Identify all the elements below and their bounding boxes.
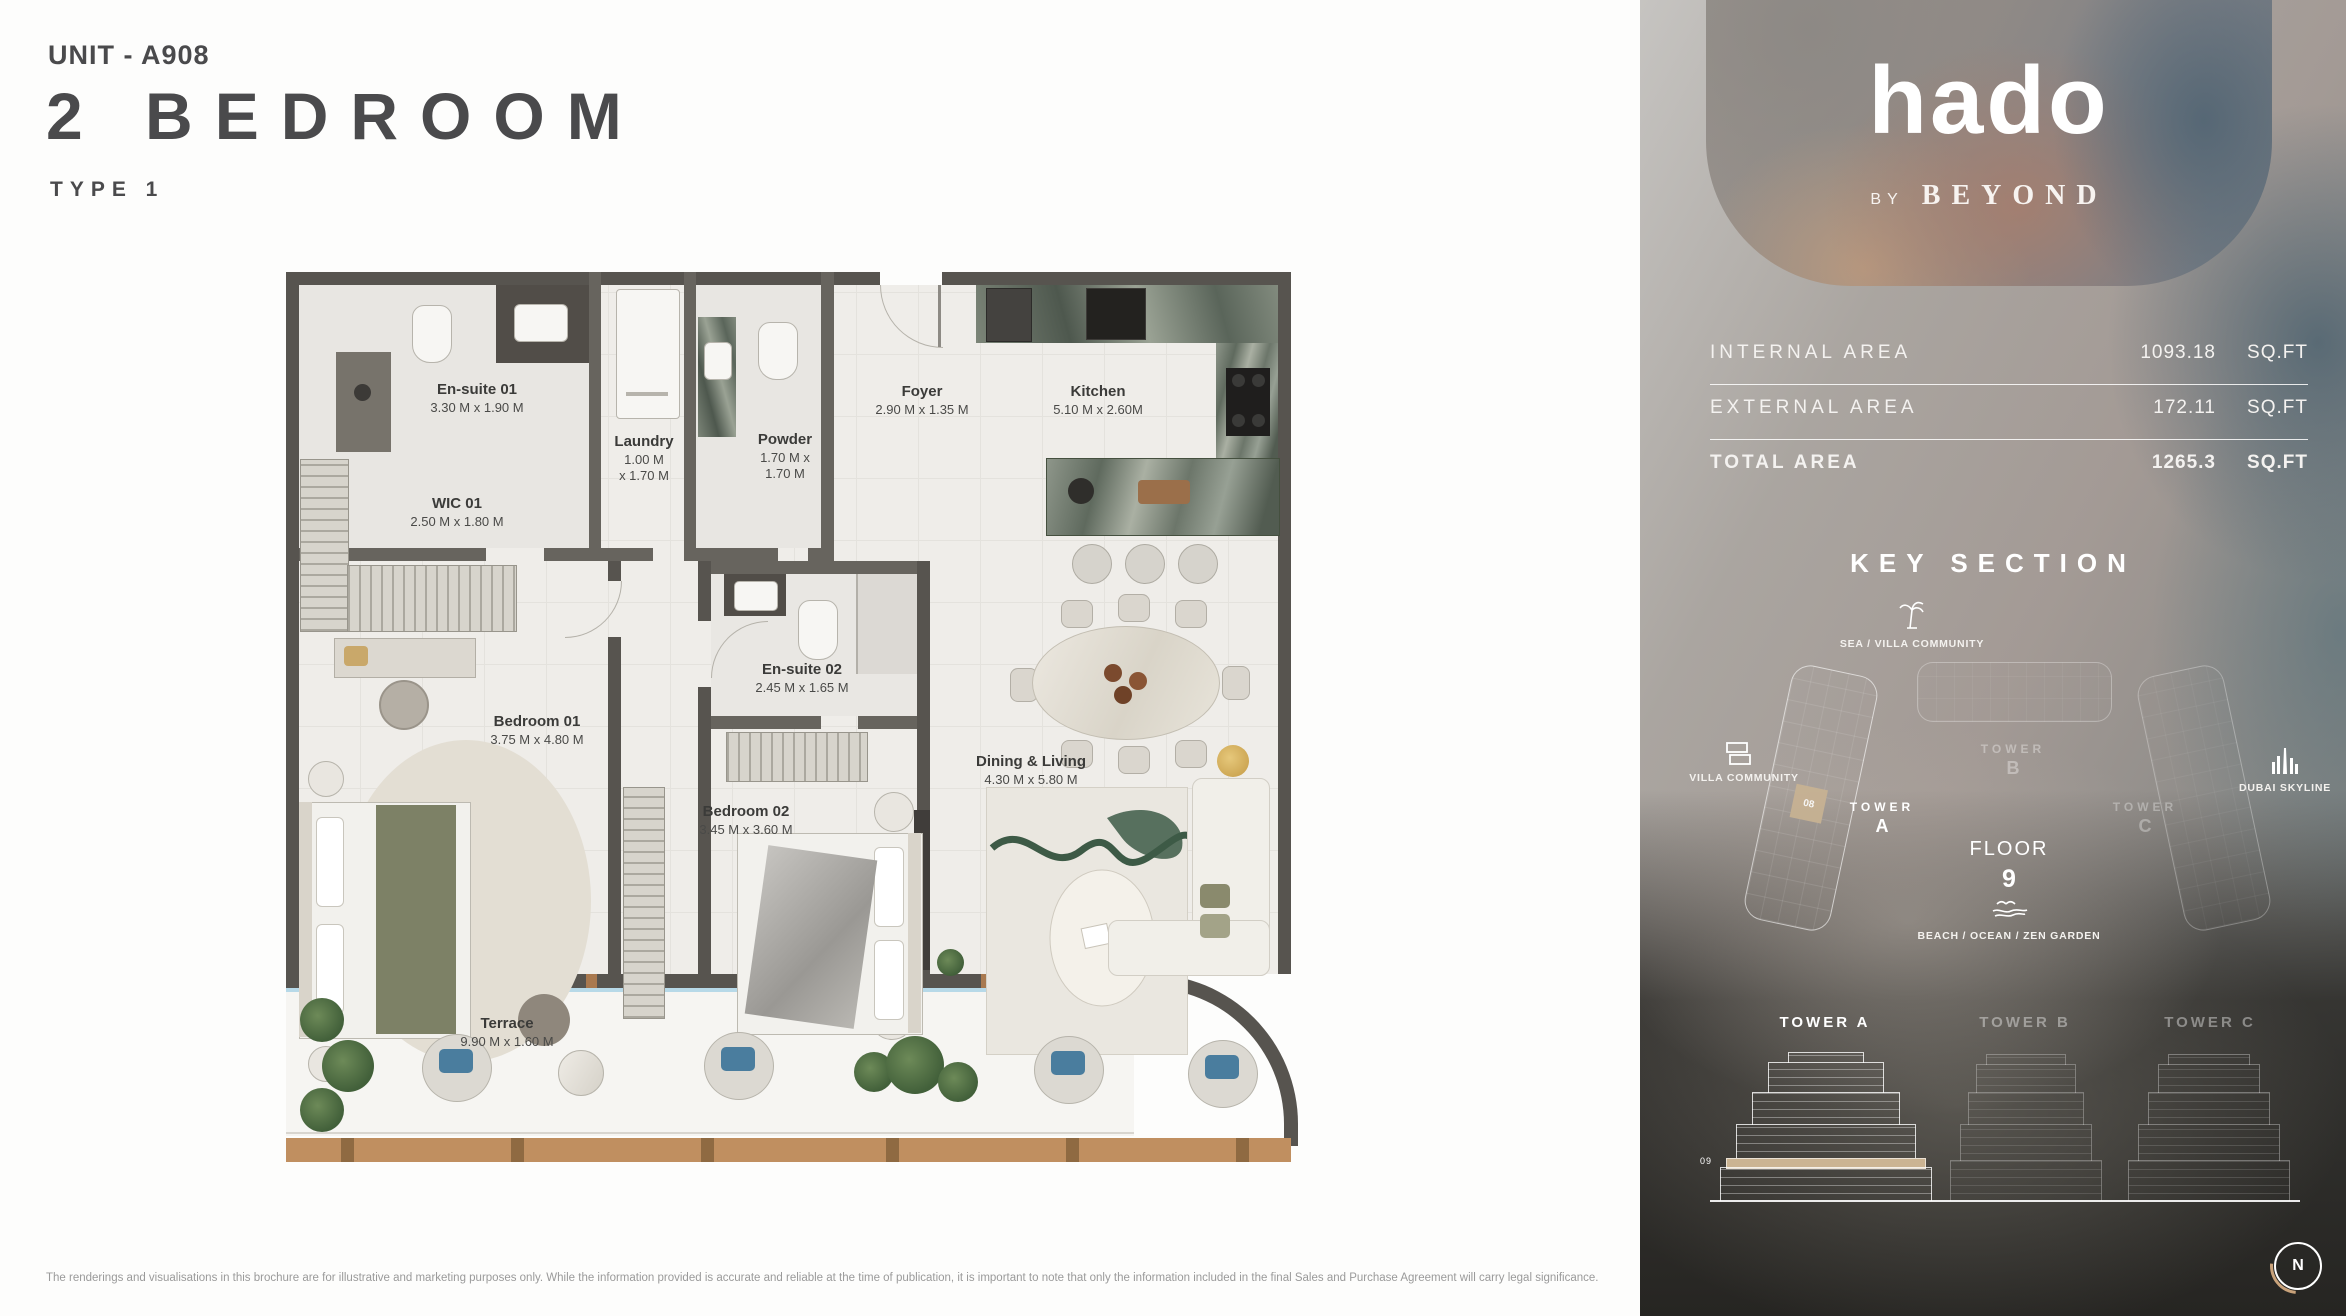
wardrobe — [300, 459, 349, 632]
wall-top — [942, 272, 1291, 285]
brochure-page: UNIT - A908 2 BEDROOM TYPE 1 — [0, 0, 2346, 1316]
plate — [1114, 686, 1132, 704]
dubai-skyline-icon — [2270, 748, 2300, 779]
toilet — [758, 322, 798, 380]
villa-community-label: VILLA COMMUNITY — [1689, 772, 1799, 784]
bar-stool — [1125, 544, 1165, 584]
dubai-skyline-label: DUBAI SKYLINE — [2239, 782, 2331, 794]
bed-02-headboard — [908, 833, 921, 1033]
room-label-wic01: WIC 01 2.50 M x 1.80 M — [410, 494, 503, 530]
washing-machine — [616, 289, 680, 419]
terrace-plant — [300, 998, 344, 1042]
corridor-closet — [623, 787, 665, 1019]
plate — [1129, 672, 1147, 690]
wall-ensuite02-bottom — [711, 716, 821, 729]
room-label-foyer: Foyer 2.90 M x 1.35 M — [875, 382, 968, 418]
brand-byline: BYBEYOND — [1706, 180, 2272, 212]
shower-area — [336, 352, 391, 452]
toilet — [798, 600, 838, 660]
palm-tree-icon — [1899, 600, 1925, 635]
plate — [1104, 664, 1122, 682]
brand-logo: hado — [1706, 46, 2272, 156]
room-label-kitchen: Kitchen 5.10 M x 2.60M — [1053, 382, 1143, 418]
sea-villa-label: SEA / VILLA COMMUNITY — [1840, 638, 1984, 650]
wall — [601, 548, 653, 561]
ensuite02-shower — [856, 574, 919, 674]
wall-bedroom01 — [608, 561, 621, 581]
deck-post — [1236, 1138, 1249, 1162]
wall-ensuite02-bottom — [858, 716, 917, 729]
entrance-door-leaf — [938, 285, 941, 347]
tower-c-tier — [2138, 1124, 2280, 1161]
tower-a-tier — [1768, 1062, 1884, 1093]
floor-09-marker: 09 — [1700, 1156, 1712, 1166]
ground-line — [1710, 1200, 2300, 1202]
floor-plan: En-suite 01 3.30 M x 1.90 M Laundry 1.00… — [286, 272, 1291, 1162]
beach-ocean-label: BEACH / OCEAN / ZEN GARDEN — [1918, 930, 2101, 942]
bed-02-throw — [745, 845, 878, 1029]
total-area-row: TOTAL AREA 1265.3 SQ.FT — [1710, 452, 2308, 480]
tower-a-tier — [1720, 1167, 1932, 1201]
deck-post — [1066, 1138, 1079, 1162]
room-label-bedroom01: Bedroom 01 3.75 M x 4.80 M — [490, 712, 583, 748]
wall — [821, 272, 834, 561]
washer-controls — [626, 392, 668, 396]
powder-sink — [704, 342, 732, 380]
key-section-heading: KEY SECTION — [1640, 548, 2346, 579]
dining-chair — [1118, 594, 1150, 622]
elevation-label-tower-b: TOWER B — [1979, 1014, 2071, 1031]
tower-a-key-label: TOWER A — [1850, 800, 1914, 837]
tower-c-tier — [2158, 1064, 2260, 1093]
brand-card: hado BYBEYOND — [1706, 0, 2272, 286]
wardrobe — [347, 565, 517, 632]
wood-deck — [286, 1138, 1291, 1162]
oven — [1086, 288, 1146, 340]
tower-c-key-label: TOWER C — [2113, 800, 2177, 837]
room-label-powder: Powder 1.70 M x 1.70 M — [758, 430, 812, 483]
wall — [589, 272, 601, 561]
burner — [1232, 374, 1245, 387]
shower-head-icon — [354, 384, 371, 401]
lounge-cushion — [721, 1047, 755, 1071]
dining-chair — [1118, 746, 1150, 774]
burner — [1252, 414, 1265, 427]
unit-08-marker: 08 — [1790, 784, 1828, 824]
lounge-chair — [704, 1032, 774, 1100]
pillow — [316, 817, 344, 907]
nightstand — [874, 792, 914, 832]
wall-ensuite02-top — [711, 561, 917, 574]
burner — [1252, 374, 1265, 387]
dining-chair — [1061, 600, 1093, 628]
bar-stool — [1072, 544, 1112, 584]
island-board — [1138, 480, 1190, 504]
terrace-side-table — [558, 1050, 604, 1096]
vanity-stool — [379, 680, 429, 730]
door-post — [586, 974, 597, 988]
deck-post — [341, 1138, 354, 1162]
tower-elevations: TOWER A TOWER B TOWER C 09 — [1710, 1014, 2310, 1214]
terrace-plant — [886, 1036, 944, 1094]
island-bowl — [1068, 478, 1094, 504]
info-panel: hado BYBEYOND INTERNAL AREA 1093.18 SQ.F… — [1640, 0, 2346, 1316]
bar-stool — [1178, 544, 1218, 584]
room-label-laundry: Laundry 1.00 M x 1.70 M — [614, 432, 673, 485]
tower-c-tier — [2128, 1160, 2290, 1201]
lounge-cushion — [439, 1049, 473, 1073]
plant — [937, 949, 964, 976]
dining-chair — [1222, 666, 1250, 700]
deck-post — [701, 1138, 714, 1162]
beach-ocean-icon — [1989, 898, 2029, 925]
wall-bedroom02-left — [698, 561, 711, 621]
bed-01-blanket — [376, 805, 456, 1034]
tower-b-tier — [1976, 1064, 2076, 1093]
room-label-dining: Dining & Living 4.30 M x 5.80 M — [976, 752, 1086, 788]
tower-a-tier — [1752, 1092, 1900, 1125]
room-label-terrace: Terrace 9.90 M x 1.60 M — [460, 1014, 553, 1050]
by-label: BY — [1870, 191, 1903, 208]
bedroom02-closet — [726, 732, 868, 782]
terrace-plant — [322, 1040, 374, 1092]
lounge-cushion — [1051, 1051, 1085, 1075]
tower-b-key-label: TOWER B — [1981, 742, 2045, 779]
room-label-ensuite01: En-suite 01 3.30 M x 1.90 M — [430, 380, 523, 416]
elevation-label-tower-c: TOWER C — [2164, 1014, 2256, 1031]
tower-b-tier — [1950, 1160, 2102, 1201]
sink — [514, 304, 568, 342]
wall — [696, 548, 778, 561]
terrace-plant — [938, 1062, 978, 1102]
tower-b-tier — [1968, 1092, 2084, 1125]
terrace-plant — [300, 1088, 344, 1132]
tower-b-plate — [1917, 662, 2112, 722]
north-compass: N — [2270, 1238, 2326, 1294]
floor-lamp — [1217, 745, 1249, 777]
area-table: INTERNAL AREA 1093.18 SQ.FT EXTERNAL ARE… — [1710, 330, 2308, 480]
disclaimer-text: The renderings and visualisations in thi… — [46, 1272, 1598, 1284]
lounge-chair — [1034, 1036, 1104, 1104]
room-label-bedroom02: Bedroom 02 3.45 M x 3.60 M — [699, 802, 792, 838]
unit-number: UNIT - A908 — [48, 40, 210, 71]
vanity-mirror — [344, 646, 368, 666]
sofa-chaise — [1108, 920, 1270, 976]
sofa-cushion — [1200, 914, 1230, 938]
pillow — [874, 940, 904, 1020]
lounge-chair — [1188, 1040, 1258, 1108]
tower-a-tier — [1736, 1124, 1916, 1159]
nightstand — [308, 761, 344, 797]
room-label-ensuite02: En-suite 02 2.45 M x 1.65 M — [755, 660, 848, 696]
toilet — [412, 305, 452, 363]
deck-post — [511, 1138, 524, 1162]
floor-indicator: FLOOR 9 — [1970, 838, 2049, 894]
burner — [1232, 414, 1245, 427]
external-area-row: EXTERNAL AREA 172.11 SQ.FT — [1710, 397, 2308, 425]
pillow — [874, 847, 904, 927]
terrace-edge — [286, 1132, 1134, 1134]
dining-chair — [1175, 740, 1207, 768]
wall-bedroom01 — [608, 637, 621, 974]
divider — [1710, 384, 2308, 385]
deck-post — [886, 1138, 899, 1162]
wall — [684, 272, 696, 561]
tower-a-plate: 08 — [1741, 662, 1881, 935]
tower-b-tier — [1960, 1124, 2092, 1161]
lounge-cushion — [1205, 1055, 1239, 1079]
page-title: 2 BEDROOM — [46, 78, 644, 154]
wall-left — [286, 272, 299, 988]
internal-area-row: INTERNAL AREA 1093.18 SQ.FT — [1710, 342, 2308, 370]
fridge — [986, 288, 1032, 342]
wall-right — [1278, 272, 1291, 974]
developer-name: BEYOND — [1922, 180, 2108, 211]
wall-top — [286, 272, 880, 285]
sofa-cushion — [1200, 884, 1230, 908]
sink — [734, 581, 778, 611]
tower-c-plate — [2134, 662, 2274, 935]
unit-type: TYPE 1 — [50, 178, 164, 202]
tower-c-tier — [2148, 1092, 2270, 1125]
dining-chair — [1175, 600, 1207, 628]
north-label: N — [2270, 1238, 2326, 1294]
villa-icon — [1723, 740, 1753, 773]
elevation-label-tower-a: TOWER A — [1780, 1014, 1871, 1031]
divider — [1710, 439, 2308, 440]
dining-table — [1032, 626, 1220, 740]
